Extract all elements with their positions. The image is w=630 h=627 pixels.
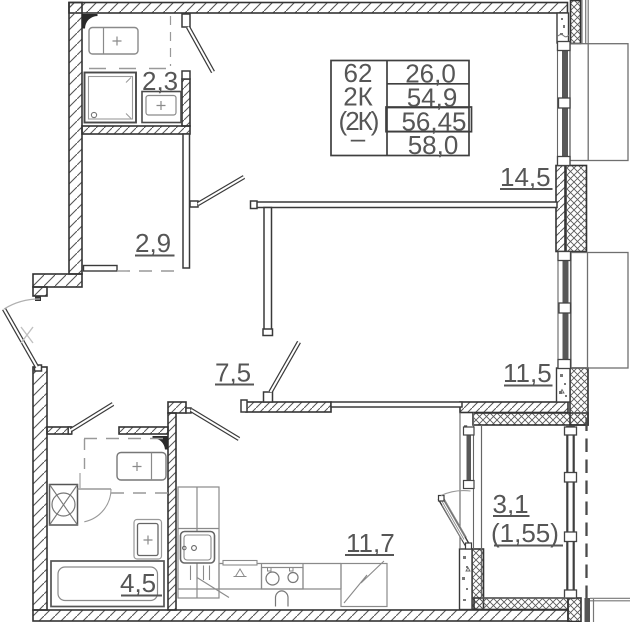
svg-text:(1,55): (1,55) [491, 518, 559, 548]
svg-text:7,5: 7,5 [215, 358, 251, 388]
svg-text:–: – [351, 123, 366, 153]
svg-text:58,0: 58,0 [408, 130, 459, 160]
svg-text:11,7: 11,7 [346, 528, 395, 558]
svg-text:3,1: 3,1 [493, 489, 529, 519]
svg-text:4,5: 4,5 [120, 568, 156, 598]
svg-text:14,5: 14,5 [500, 162, 551, 192]
svg-text:2,3: 2,3 [142, 66, 178, 96]
svg-text:11,5: 11,5 [503, 358, 552, 388]
svg-text:2,9: 2,9 [135, 228, 171, 258]
